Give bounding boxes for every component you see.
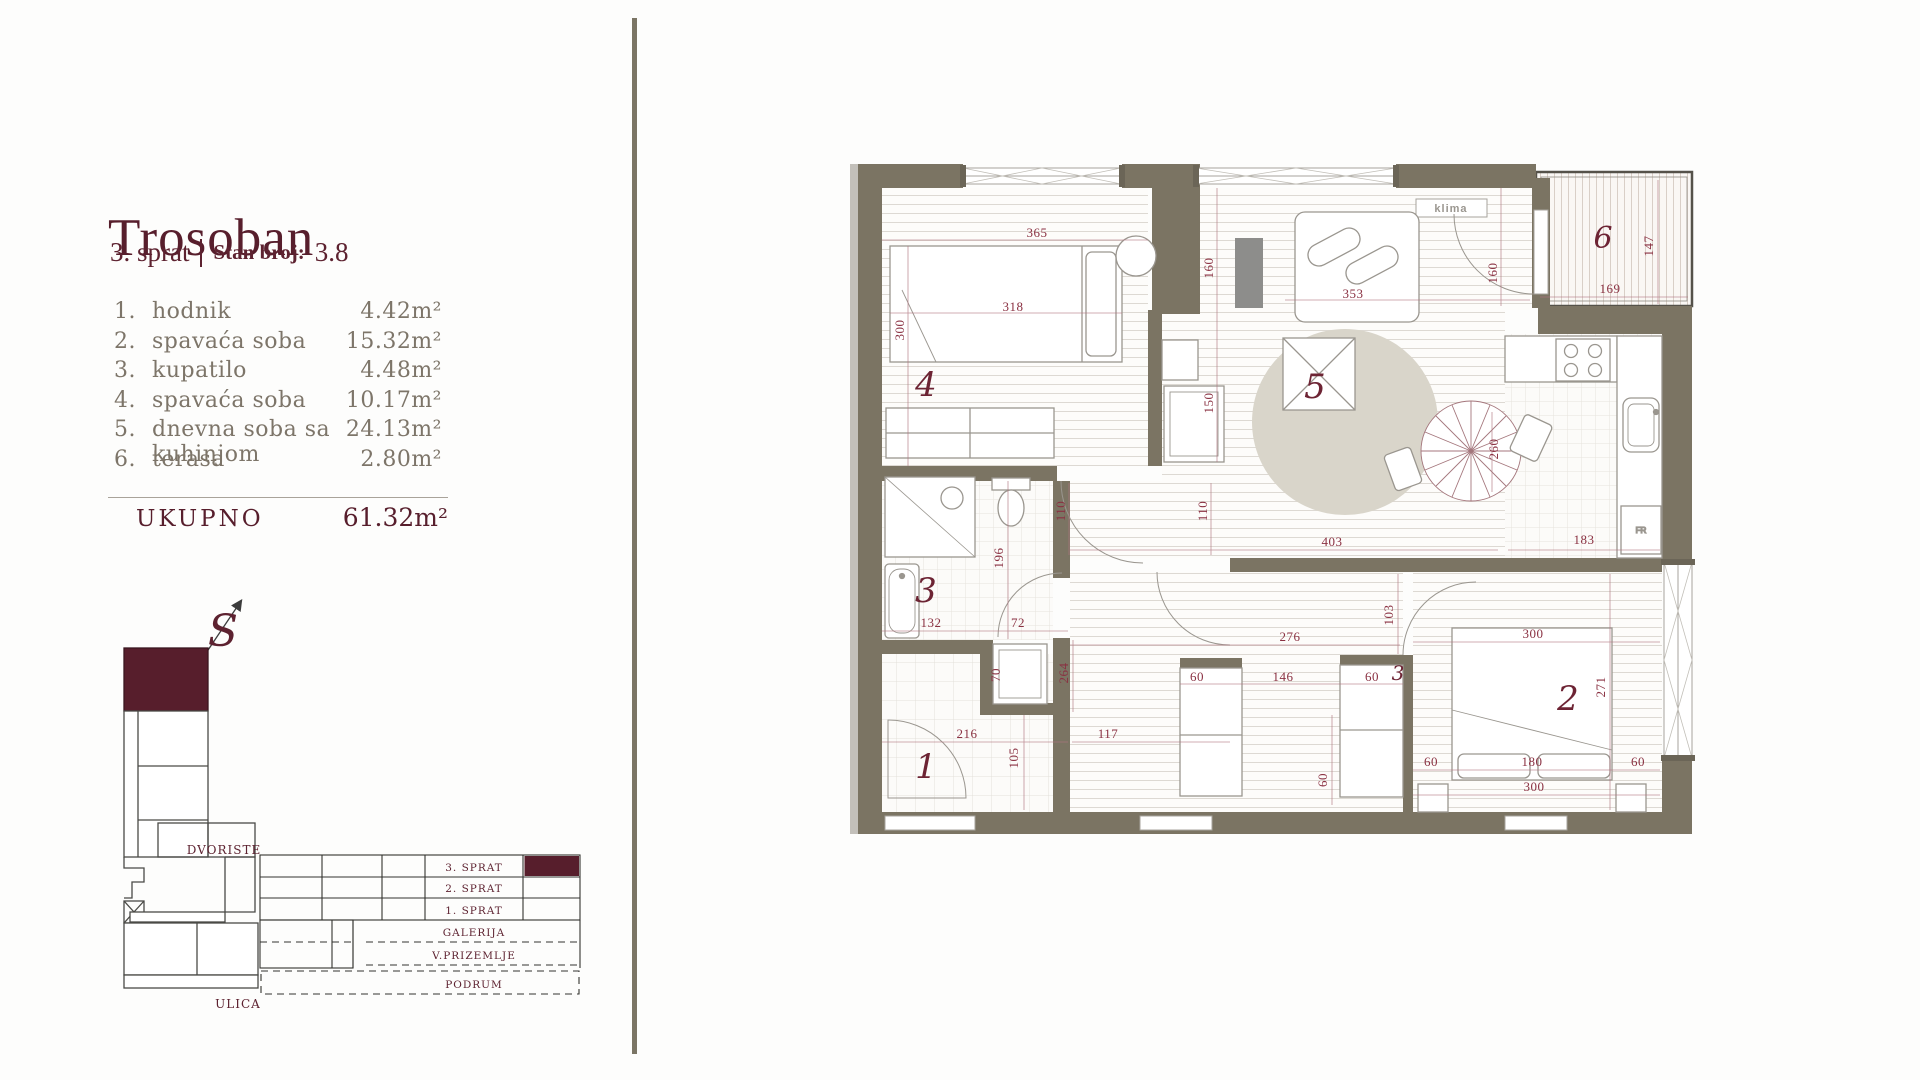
room-num: 4. <box>110 388 136 413</box>
shelf-niche <box>1162 340 1198 380</box>
fridge-icon: FR <box>1621 506 1661 554</box>
dim-146: 146 <box>1273 669 1294 684</box>
dim-216: 216 <box>957 726 978 741</box>
window-bedroom4-icon <box>960 165 1125 187</box>
sofa-icon <box>1295 212 1419 322</box>
dim-160-terrace-door: 160 <box>1485 263 1500 284</box>
dim-318: 318 <box>1003 299 1024 314</box>
dim-150: 150 <box>1201 393 1216 414</box>
window-bedroom2-icon <box>1661 559 1695 761</box>
compass-letter: S <box>208 606 238 657</box>
room-name: terasa <box>152 447 360 472</box>
exterior-strip <box>850 164 858 834</box>
dim-110-b: 110 <box>1195 501 1210 522</box>
room-name: spavaća soba <box>152 388 346 413</box>
highlighted-floor-block <box>124 648 208 711</box>
entry-door-panel <box>885 816 975 830</box>
floor-row-2sprat: 2. SPRAT <box>445 883 503 895</box>
bedside-table-icon <box>1116 236 1156 276</box>
room-number-6: 6 <box>1593 221 1612 256</box>
floor-section-table <box>260 855 580 994</box>
dim-183: 183 <box>1574 532 1595 547</box>
subtitle-divider <box>200 239 202 267</box>
dim-264: 264 <box>1056 663 1071 684</box>
room-num: 5. <box>110 417 136 442</box>
yard-label: DVORISTE <box>187 843 261 857</box>
dim-180: 180 <box>1522 754 1543 769</box>
dim-60-nightstand-right: 60 <box>1631 754 1645 769</box>
room-area: 4.42m² <box>360 299 442 324</box>
room-number-5: 5 <box>1304 367 1326 407</box>
room-area: 15.32m² <box>346 329 442 354</box>
dim-353: 353 <box>1343 286 1364 301</box>
dim-300-bed-top: 300 <box>1523 626 1544 641</box>
room-num: 3. <box>110 358 136 383</box>
room-area: 10.17m² <box>346 388 442 413</box>
klima-unit: klima <box>1416 199 1487 217</box>
shower-icon <box>885 477 975 557</box>
floor-row-vprizemlje: V.PRIZEMLJE <box>431 950 516 962</box>
dim-169: 169 <box>1600 281 1621 296</box>
klima-label: klima <box>1434 203 1467 215</box>
bedroom2-bottom-window <box>1505 816 1567 830</box>
floor-row-1sprat: 1. SPRAT <box>445 905 503 917</box>
dim-117: 117 <box>1098 726 1119 741</box>
bathtub-icon <box>885 564 919 638</box>
room-num: 2. <box>110 329 136 354</box>
wardrobe-bedroom4 <box>886 408 1054 458</box>
room-list-item: 6. terasa 2.80m² <box>110 447 442 477</box>
subtitle: 3. sprat Stan broj: 3.8 <box>110 237 348 268</box>
vertical-divider <box>632 18 637 1054</box>
room-list: 1. hodnik 4.42m² 2. spavaća soba 15.32m²… <box>110 299 442 476</box>
room-name: kupatilo <box>152 358 360 383</box>
dim-276: 276 <box>1280 629 1301 644</box>
dim-160-hall: 160 <box>1201 258 1216 279</box>
fridge-label: FR <box>1636 526 1647 535</box>
room-number-1: 1 <box>915 747 937 787</box>
room-name: spavaća soba <box>152 329 346 354</box>
dim-147: 147 <box>1641 236 1656 257</box>
dim-60-closet-left: 60 <box>1190 669 1204 684</box>
apartment-floorplan: klima <box>840 150 1720 850</box>
dim-72: 72 <box>1011 615 1025 630</box>
window-living-icon <box>1193 165 1399 187</box>
dim-403: 403 <box>1322 534 1343 549</box>
floor-row-podrum: PODRUM <box>445 979 503 991</box>
dim-60-rotated: 60 <box>1315 773 1330 787</box>
unit-number: 3.8 <box>315 237 349 268</box>
room-list-item: 2. spavaća soba 15.32m² <box>110 329 442 359</box>
dim-260: 260 <box>1486 439 1501 460</box>
floorplan-page: Trosoban 3. sprat Stan broj: 3.8 1. hodn… <box>0 0 1920 1080</box>
sink-icon <box>1623 398 1659 452</box>
nightstand-icon <box>1616 784 1646 812</box>
room-list-item: 3. kupatilo 4.48m² <box>110 358 442 388</box>
room-name: hodnik <box>152 299 360 324</box>
dim-196: 196 <box>991 548 1006 569</box>
terrace-door-panel <box>1534 210 1548 294</box>
room-num: 1. <box>110 299 136 324</box>
dim-103: 103 <box>1381 605 1396 626</box>
street-label: ULICA <box>215 997 261 1011</box>
room-number-2: 2 <box>1556 679 1579 719</box>
room-list-item: 4. spavaća soba 10.17m² <box>110 388 442 418</box>
dim-132: 132 <box>921 615 942 630</box>
dim-365: 365 <box>1027 225 1048 240</box>
room-number-3: 3 <box>915 571 937 611</box>
current-floor-highlight-cell <box>525 856 580 876</box>
dim-110-a: 110 <box>1053 501 1068 522</box>
total-area: 61.32m² <box>264 503 448 532</box>
siteplan: S DVORISTE ULICA <box>110 590 600 1030</box>
bottom-window-panel <box>1140 816 1212 830</box>
room-num: 6. <box>110 447 136 472</box>
corridor-floor-upper <box>1057 481 1162 558</box>
closet-left <box>1180 668 1242 796</box>
room-list-item: 1. hodnik 4.42m² <box>110 299 442 329</box>
room-area: 2.80m² <box>360 447 442 472</box>
room-area: 4.48m² <box>360 358 442 383</box>
floor-label: 3. sprat <box>110 237 189 268</box>
floor-row-3sprat: 3. SPRAT <box>445 862 503 874</box>
ceiling-fan-icon <box>1421 401 1521 501</box>
floor-row-galerija: GALERIJA <box>443 927 505 939</box>
dim-300-bed-bottom: 300 <box>1524 779 1545 794</box>
dim-271: 271 <box>1593 677 1608 698</box>
dim-300-left: 300 <box>892 320 907 341</box>
total-divider-line <box>108 497 448 498</box>
dim-60-closet-right: 60 <box>1365 669 1379 684</box>
room-number-4: 4 <box>914 365 937 405</box>
nightstand-icon <box>1418 784 1448 812</box>
total-label: UKUPNO <box>136 506 264 532</box>
room-list-item: 5. dnevna soba sa kuhinjom 24.13m² <box>110 417 442 447</box>
unit-label: Stan broj: <box>213 240 304 265</box>
dim-105: 105 <box>1006 748 1021 769</box>
corridor-mark-3: 3 <box>1392 661 1405 685</box>
dim-60-nightstand-left: 60 <box>1424 754 1438 769</box>
room-area: 24.13m² <box>346 417 442 442</box>
dim-70: 70 <box>988 668 1003 682</box>
tv-stand-icon <box>1235 238 1263 308</box>
total-row: UKUPNO 61.32m² <box>108 503 448 532</box>
site-building <box>124 648 258 988</box>
hob-icon <box>1556 339 1610 381</box>
